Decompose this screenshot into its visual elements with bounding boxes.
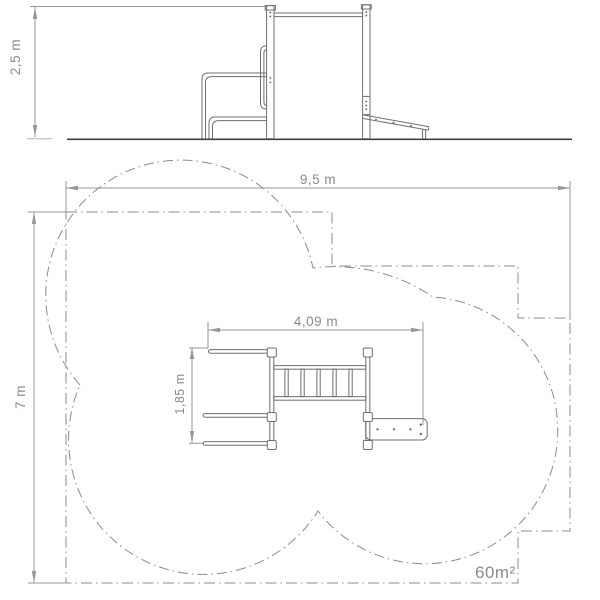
post-node — [267, 413, 276, 422]
plan-depth-label: 7 m — [13, 385, 28, 409]
arrow-right-icon — [558, 186, 570, 190]
ladder-rail-bottom — [274, 397, 366, 401]
equip-width-label: 4,09 m — [294, 314, 338, 329]
plan-width-label: 9,5 m — [300, 172, 336, 187]
safety-zone-cloud — [46, 160, 558, 574]
equipment-plan — [203, 348, 427, 450]
arrow-down-icon — [33, 125, 37, 137]
arrow-up-icon — [33, 7, 37, 19]
arrow-up-icon — [32, 212, 36, 224]
dim-plan-depth — [28, 212, 66, 583]
top-left-bar — [209, 350, 268, 354]
drawing-sheet: 2,5 m — [0, 0, 600, 600]
elevation-height-label: 2,5 m — [8, 39, 23, 75]
ladder-rung — [301, 369, 304, 396]
lower-hoop — [209, 117, 267, 139]
ladder-rung — [285, 369, 288, 396]
arrow-left-icon — [66, 186, 78, 190]
area-label: 60m² — [475, 563, 516, 582]
right-member — [366, 353, 370, 446]
post-node — [363, 413, 372, 422]
upper-hoop — [202, 73, 267, 139]
dim-equip-width — [208, 322, 423, 425]
elevation-view: 2,5 m — [8, 5, 572, 140]
plan-view: 9,5 m 7 m 4,09 m — [13, 160, 570, 583]
top-bar — [274, 13, 363, 17]
equip-depth-label: 1,85 m — [173, 373, 187, 414]
ramp-platform — [366, 419, 427, 440]
installation-boundary — [66, 212, 570, 583]
ladder-rail-top — [274, 366, 366, 370]
post-node — [363, 348, 372, 357]
post-node — [267, 348, 276, 357]
arrow-down-icon — [190, 431, 194, 443]
post-node — [267, 441, 276, 450]
arrow-left-icon — [208, 328, 220, 332]
ladder-rung — [317, 369, 320, 396]
arrow-up-icon — [190, 347, 194, 359]
bottom-left-bar — [203, 442, 269, 446]
post-node — [363, 441, 372, 450]
dim-equip-depth — [189, 347, 208, 443]
left-post — [265, 6, 275, 139]
ramp — [363, 115, 429, 139]
grab-rail — [261, 46, 267, 109]
left-member — [270, 353, 274, 446]
arrow-right-icon — [411, 328, 423, 332]
arrow-down-icon — [32, 571, 36, 583]
ladder-rung — [333, 369, 336, 396]
dim-plan-width — [66, 181, 570, 320]
cad-canvas: 2,5 m — [0, 0, 600, 600]
ladder-rung — [349, 369, 352, 396]
mid-left-bar — [203, 414, 269, 418]
